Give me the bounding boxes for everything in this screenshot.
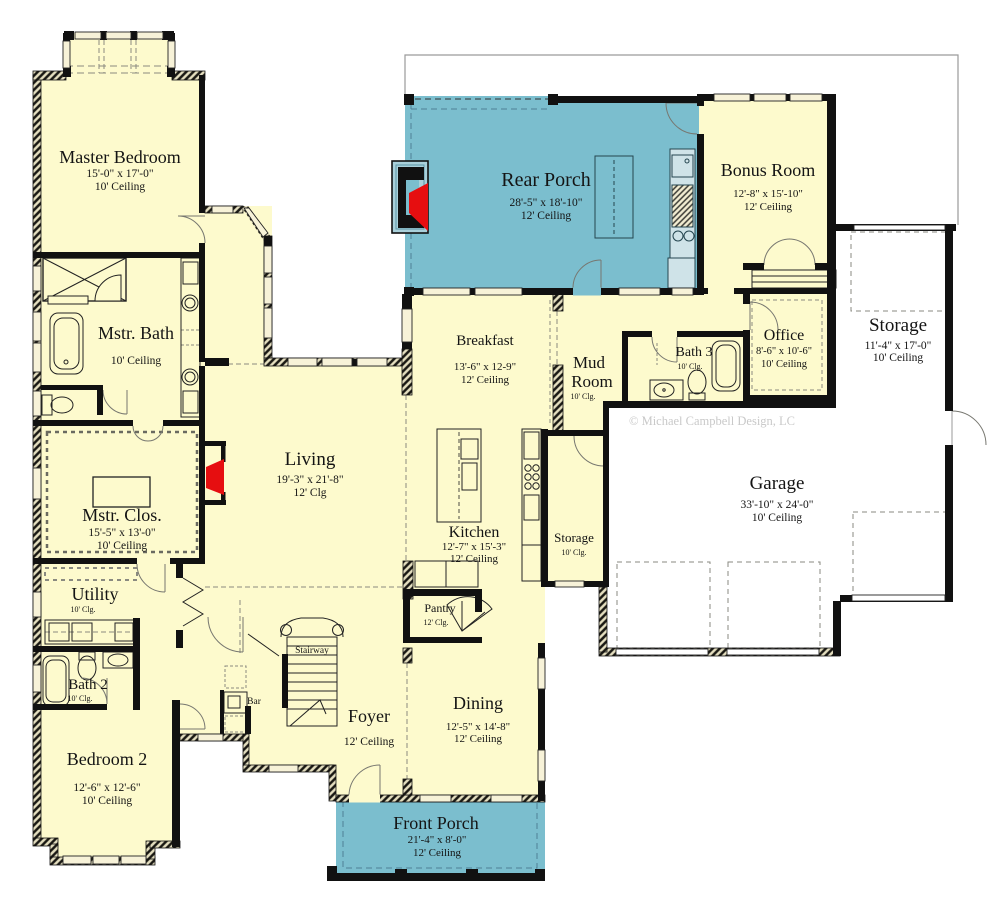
svg-text:12' Ceiling: 12' Ceiling	[521, 210, 572, 222]
svg-text:Bath 3: Bath 3	[676, 345, 713, 360]
svg-text:15'-5" x 13'-0": 15'-5" x 13'-0"	[88, 527, 155, 539]
svg-text:10' Clg.: 10' Clg.	[68, 694, 93, 703]
svg-text:Pantry: Pantry	[424, 601, 455, 615]
svg-text:15'-0" x 17'-0": 15'-0" x 17'-0"	[86, 168, 153, 180]
svg-text:33'-10" x 24'-0": 33'-10" x 24'-0"	[741, 499, 814, 511]
svg-text:Bath 2: Bath 2	[68, 677, 108, 693]
svg-text:10' Ceiling: 10' Ceiling	[761, 359, 808, 370]
svg-text:Utility: Utility	[71, 584, 118, 604]
svg-text:Dining: Dining	[453, 693, 503, 713]
svg-text:10' Ceiling: 10' Ceiling	[82, 795, 133, 807]
svg-text:10' Clg.: 10' Clg.	[571, 392, 596, 401]
svg-text:28'-5" x 18'-10": 28'-5" x 18'-10"	[510, 197, 583, 209]
svg-text:© Michael Campbell Design, LC: © Michael Campbell Design, LC	[629, 414, 795, 428]
svg-text:12' Clg: 12' Clg	[293, 487, 326, 499]
svg-text:19'-3" x 21'-8": 19'-3" x 21'-8"	[276, 474, 343, 486]
svg-text:12' Ceiling: 12' Ceiling	[344, 736, 395, 748]
svg-text:11'-4" x 17'-0": 11'-4" x 17'-0"	[865, 340, 932, 352]
svg-text:8'-6" x 10'-6": 8'-6" x 10'-6"	[756, 346, 812, 357]
svg-text:12' Ceiling: 12' Ceiling	[450, 553, 499, 565]
svg-text:Office: Office	[764, 327, 805, 344]
svg-text:Bonus Room: Bonus Room	[721, 160, 816, 180]
svg-text:10' Ceiling: 10' Ceiling	[111, 355, 162, 367]
svg-text:12'-8" x 15'-10": 12'-8" x 15'-10"	[733, 188, 803, 200]
svg-text:12'-7" x 15'-3": 12'-7" x 15'-3"	[442, 541, 506, 553]
svg-text:13'-6" x 12-9": 13'-6" x 12-9"	[454, 361, 516, 373]
svg-text:Kitchen: Kitchen	[449, 524, 500, 541]
svg-text:Stairway: Stairway	[295, 646, 329, 656]
svg-text:21'-4" x 8'-0": 21'-4" x 8'-0"	[408, 834, 467, 846]
svg-text:Storage: Storage	[554, 530, 594, 545]
svg-text:Living: Living	[285, 449, 336, 470]
svg-text:12' Ceiling: 12' Ceiling	[413, 847, 462, 859]
svg-text:Master Bedroom: Master Bedroom	[59, 147, 180, 167]
svg-text:10' Clg.: 10' Clg.	[71, 605, 96, 614]
svg-text:10' Ceiling: 10' Ceiling	[95, 181, 146, 193]
svg-text:Room: Room	[571, 372, 613, 391]
svg-text:12' Ceiling: 12' Ceiling	[454, 733, 503, 745]
svg-text:Storage: Storage	[869, 315, 927, 336]
svg-text:Garage: Garage	[750, 473, 805, 494]
svg-text:Mstr. Bath: Mstr. Bath	[98, 323, 174, 343]
svg-text:10' Clg.: 10' Clg.	[562, 548, 587, 557]
svg-text:10' Clg.: 10' Clg.	[678, 362, 703, 371]
svg-text:Foyer: Foyer	[348, 706, 390, 726]
svg-text:Bedroom 2: Bedroom 2	[67, 749, 148, 769]
svg-text:12'-5" x 14'-8": 12'-5" x 14'-8"	[446, 721, 510, 733]
svg-text:12'-6" x 12'-6": 12'-6" x 12'-6"	[73, 782, 140, 794]
svg-text:Rear Porch: Rear Porch	[501, 169, 590, 191]
svg-text:10' Ceiling: 10' Ceiling	[97, 540, 148, 552]
svg-text:Mstr. Clos.: Mstr. Clos.	[82, 505, 162, 525]
svg-text:12' Ceiling: 12' Ceiling	[461, 374, 510, 386]
svg-text:10' Ceiling: 10' Ceiling	[752, 512, 803, 524]
svg-text:Breakfast: Breakfast	[456, 333, 514, 349]
svg-text:12' Clg.: 12' Clg.	[424, 618, 449, 627]
svg-text:Mud: Mud	[573, 353, 606, 372]
svg-text:Bar: Bar	[247, 697, 262, 707]
svg-text:12' Ceiling: 12' Ceiling	[744, 201, 793, 213]
svg-text:Front Porch: Front Porch	[393, 813, 479, 833]
svg-text:10' Ceiling: 10' Ceiling	[873, 352, 924, 364]
